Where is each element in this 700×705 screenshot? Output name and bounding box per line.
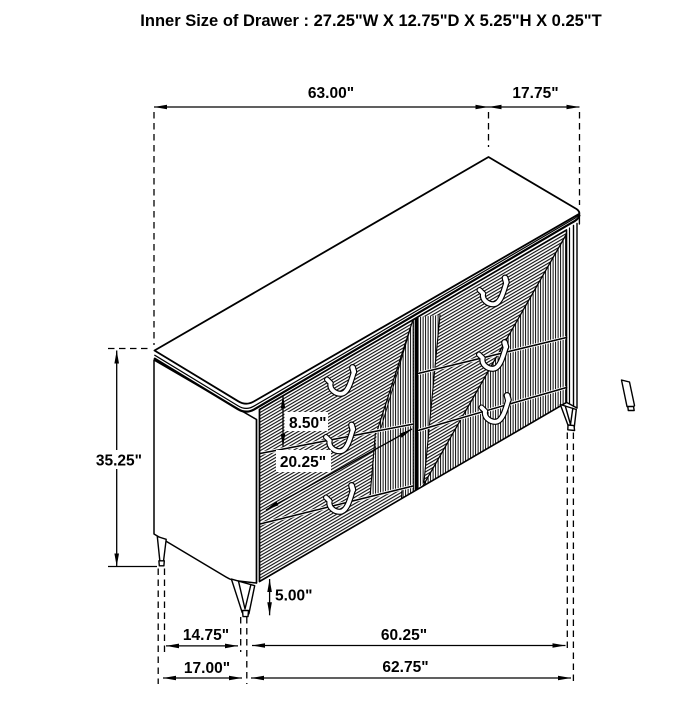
- svg-text:17.75": 17.75": [512, 85, 558, 102]
- svg-text:63.00": 63.00": [308, 85, 354, 102]
- svg-text:8.50": 8.50": [289, 415, 327, 432]
- svg-text:5.00": 5.00": [275, 588, 313, 605]
- svg-text:62.75": 62.75": [382, 659, 428, 676]
- svg-text:20.25": 20.25": [280, 454, 326, 471]
- svg-text:Inner Size of Drawer : 27.25"W: Inner Size of Drawer : 27.25"W X 12.75"D…: [140, 12, 601, 30]
- svg-text:14.75": 14.75": [183, 627, 229, 644]
- svg-text:35.25": 35.25": [96, 453, 142, 470]
- svg-text:17.00": 17.00": [184, 660, 230, 677]
- svg-text:60.25": 60.25": [381, 627, 427, 644]
